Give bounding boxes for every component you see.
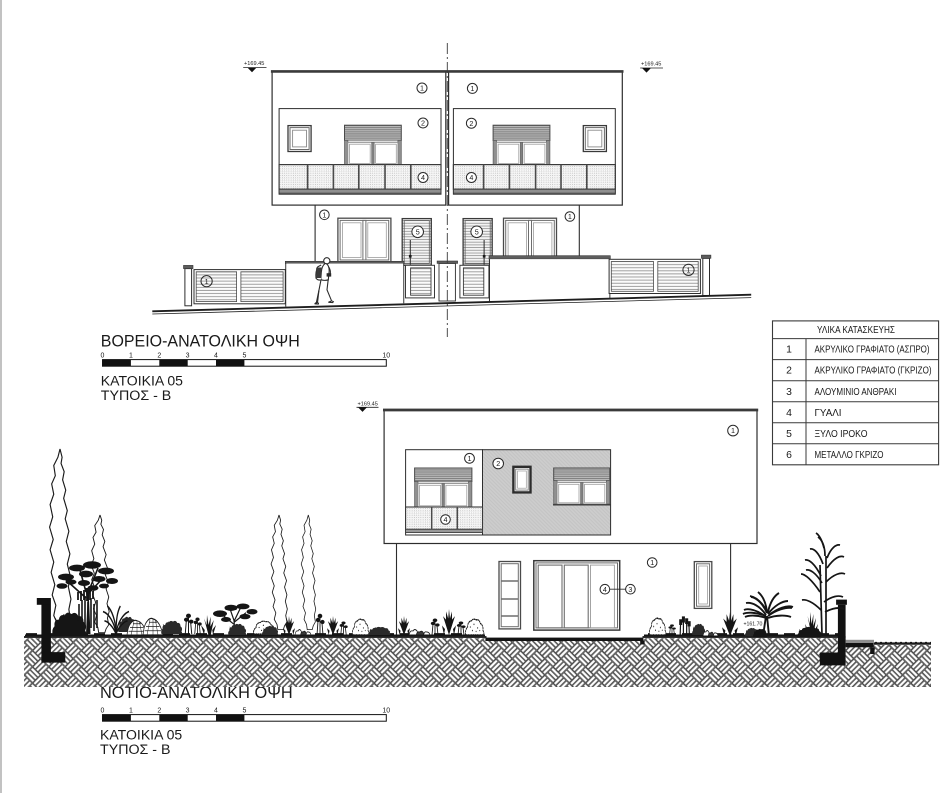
svg-text:2: 2 (786, 366, 792, 377)
svg-text:3: 3 (628, 585, 632, 594)
svg-text:4: 4 (603, 585, 607, 594)
svg-text:5: 5 (475, 227, 479, 236)
svg-text:ΥΛΙΚΑ ΚΑΤΑΣΚΕΥΗΣ: ΥΛΙΚΑ ΚΑΤΑΣΚΕΥΗΣ (817, 325, 895, 336)
svg-text:4: 4 (786, 408, 792, 419)
svg-text:0: 0 (101, 352, 105, 359)
svg-text:1: 1 (129, 352, 133, 359)
svg-text:1: 1 (129, 707, 133, 714)
svg-text:10: 10 (382, 707, 390, 714)
svg-text:1: 1 (470, 84, 474, 93)
svg-text:4: 4 (421, 173, 425, 182)
svg-text:5: 5 (786, 429, 792, 440)
svg-text:+169.45: +169.45 (641, 62, 661, 68)
svg-text:ΤΥΠΟΣ - Β: ΤΥΠΟΣ - Β (101, 388, 172, 404)
svg-text:2: 2 (469, 119, 473, 128)
svg-text:3: 3 (186, 707, 190, 714)
svg-text:2: 2 (157, 707, 161, 714)
svg-text:2: 2 (157, 352, 161, 359)
svg-text:ΑΛΟΥΜΙΝΙΟ ΑΝΘΡΑΚΙ: ΑΛΟΥΜΙΝΙΟ ΑΝΘΡΑΚΙ (815, 387, 897, 398)
svg-text:6: 6 (786, 450, 792, 461)
svg-text:1: 1 (650, 558, 654, 567)
svg-text:ΜΕΤΑΛΛΟ ΓΚΡΙΖΟ: ΜΕΤΑΛΛΟ ΓΚΡΙΖΟ (815, 450, 884, 461)
svg-text:1: 1 (420, 84, 424, 93)
svg-text:1: 1 (786, 345, 792, 356)
svg-text:4: 4 (214, 707, 218, 714)
svg-text:4: 4 (444, 515, 448, 524)
svg-text:3: 3 (186, 352, 190, 359)
svg-text:ΒΟΡΕΙΟ-ΑΝΑΤΟΛΙΚΗ ΟΨΗ: ΒΟΡΕΙΟ-ΑΝΑΤΟΛΙΚΗ ΟΨΗ (101, 332, 300, 350)
svg-text:2: 2 (496, 459, 500, 468)
svg-text:4: 4 (214, 352, 218, 359)
svg-text:+169.45: +169.45 (244, 61, 264, 67)
svg-text:2: 2 (421, 119, 425, 128)
svg-text:5: 5 (242, 707, 246, 714)
svg-text:1: 1 (468, 454, 472, 463)
svg-text:1: 1 (687, 266, 691, 275)
svg-text:10: 10 (382, 352, 390, 359)
svg-text:1: 1 (568, 212, 572, 221)
svg-text:ΑΚΡΥΛΙΚΟ ΓΡΑΦΙΑΤΟ (ΑΣΠΡΟ): ΑΚΡΥΛΙΚΟ ΓΡΑΦΙΑΤΟ (ΑΣΠΡΟ) (815, 345, 930, 356)
svg-text:ΞΥΛΟ ΙΡΟΚΟ: ΞΥΛΟ ΙΡΟΚΟ (815, 429, 868, 440)
svg-text:5: 5 (242, 352, 246, 359)
svg-text:0: 0 (101, 707, 105, 714)
svg-text:+161.70: +161.70 (744, 622, 763, 628)
svg-text:ΤΥΠΟΣ - Β: ΤΥΠΟΣ - Β (100, 742, 171, 758)
svg-text:ΓΥΑΛΙ: ΓΥΑΛΙ (815, 408, 842, 419)
svg-text:1: 1 (205, 277, 209, 286)
svg-text:ΑΚΡΥΛΙΚΟ ΓΡΑΦΙΑΤΟ (ΓΚΡΙΖΟ): ΑΚΡΥΛΙΚΟ ΓΡΑΦΙΑΤΟ (ΓΚΡΙΖΟ) (815, 366, 932, 377)
svg-text:4: 4 (469, 173, 473, 182)
svg-text:5: 5 (416, 227, 420, 236)
svg-text:+169.45: +169.45 (358, 401, 378, 407)
svg-text:3: 3 (786, 387, 792, 398)
svg-text:1: 1 (731, 426, 735, 435)
svg-text:1: 1 (322, 210, 326, 219)
